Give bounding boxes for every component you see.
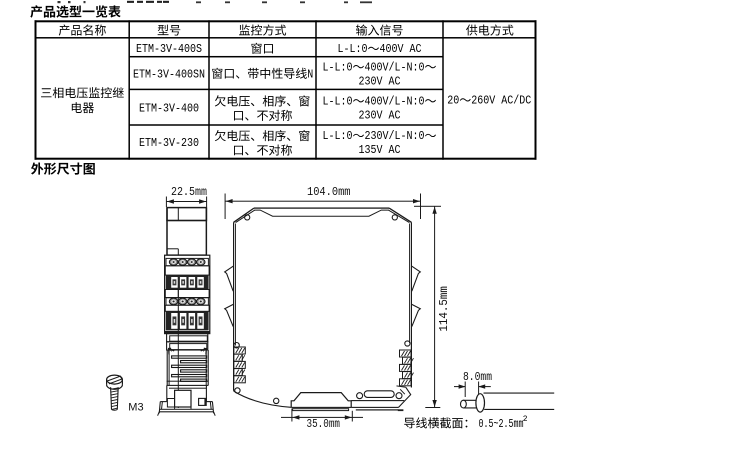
svg-text:114.5mm: 114.5mm xyxy=(437,286,451,332)
svg-text:ETM-3V-400S: ETM-3V-400S xyxy=(136,42,202,56)
svg-text:20: 20 xyxy=(447,94,459,108)
svg-text:N: N xyxy=(307,68,313,82)
svg-text:230V AC: 230V AC xyxy=(359,109,401,123)
svg-text:L-L:0: L-L:0 xyxy=(323,94,353,108)
svg-text:400V AC: 400V AC xyxy=(380,42,422,56)
svg-text:ETM-3V-400SN: ETM-3V-400SN xyxy=(133,68,205,82)
svg-text:2: 2 xyxy=(523,415,528,424)
svg-text:230V/L-N:0: 230V/L-N:0 xyxy=(365,129,425,143)
svg-text:ETM-3V-400: ETM-3V-400 xyxy=(139,101,199,115)
svg-text:L-L:0: L-L:0 xyxy=(338,42,368,56)
svg-text:8.0mm: 8.0mm xyxy=(463,370,492,384)
svg-text:ETM-3V-230: ETM-3V-230 xyxy=(139,136,199,150)
svg-text:L-L:0: L-L:0 xyxy=(323,129,353,143)
svg-text:L-L:0: L-L:0 xyxy=(323,60,353,74)
svg-text:230V AC: 230V AC xyxy=(359,74,401,88)
svg-text:0.5~2.5mm: 0.5~2.5mm xyxy=(479,417,524,431)
svg-text:M3: M3 xyxy=(128,401,143,413)
svg-text:35.0mm: 35.0mm xyxy=(307,417,341,431)
svg-text:260V AC/DC: 260V AC/DC xyxy=(471,94,531,108)
svg-text:400V/L-N:0: 400V/L-N:0 xyxy=(365,94,425,108)
svg-text:104.0mm: 104.0mm xyxy=(307,185,351,199)
svg-text:135V AC: 135V AC xyxy=(359,143,401,157)
svg-text:400V/L-N:0: 400V/L-N:0 xyxy=(365,60,425,74)
svg-text:22.5mm: 22.5mm xyxy=(171,185,207,199)
